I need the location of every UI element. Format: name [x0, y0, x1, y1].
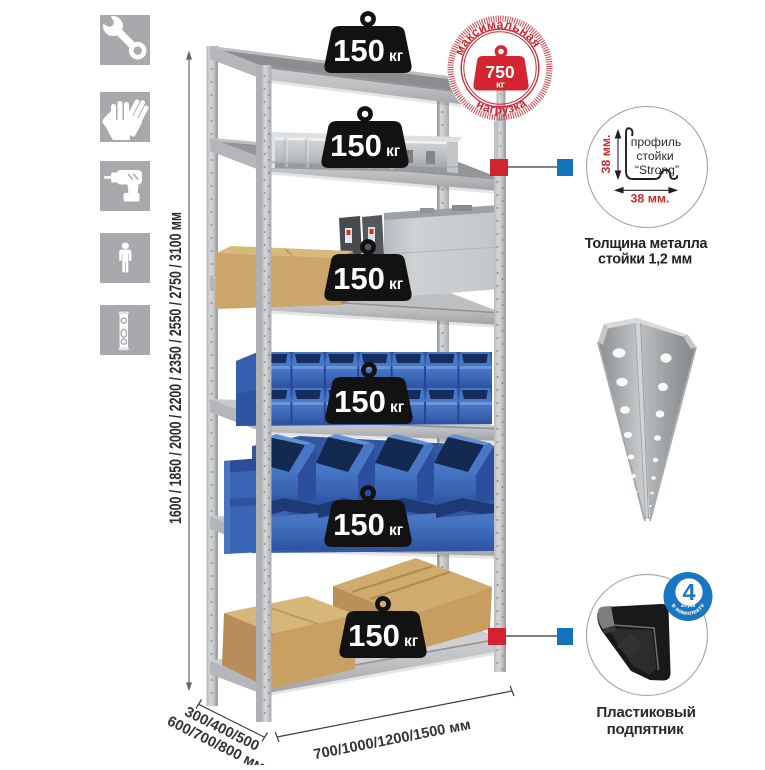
- svg-text:штуки: штуки: [681, 604, 696, 609]
- svg-text:профиль: профиль: [631, 135, 681, 149]
- svg-text:1600 / 1850 / 2000 / 2200 / 23: 1600 / 1850 / 2000 / 2200 / 2350 / 2550 …: [167, 212, 185, 524]
- svg-text:стойки 1,2 мм: стойки 1,2 мм: [598, 252, 692, 268]
- svg-text:Пластиковый: Пластиковый: [596, 704, 695, 721]
- svg-text:38 мм.: 38 мм.: [599, 135, 613, 174]
- svg-text:“Strong”: “Strong”: [635, 163, 679, 177]
- svg-text:4: 4: [682, 579, 695, 605]
- svg-text:700/1000/1200/1500 мм: 700/1000/1200/1500 мм: [312, 717, 472, 763]
- svg-text:38 мм.: 38 мм.: [631, 192, 670, 206]
- svg-text:Толщина металла: Толщина металла: [585, 236, 709, 252]
- svg-text:кг: кг: [496, 80, 505, 91]
- svg-text:подпятник: подпятник: [607, 721, 684, 738]
- svg-text:стойки: стойки: [636, 149, 673, 163]
